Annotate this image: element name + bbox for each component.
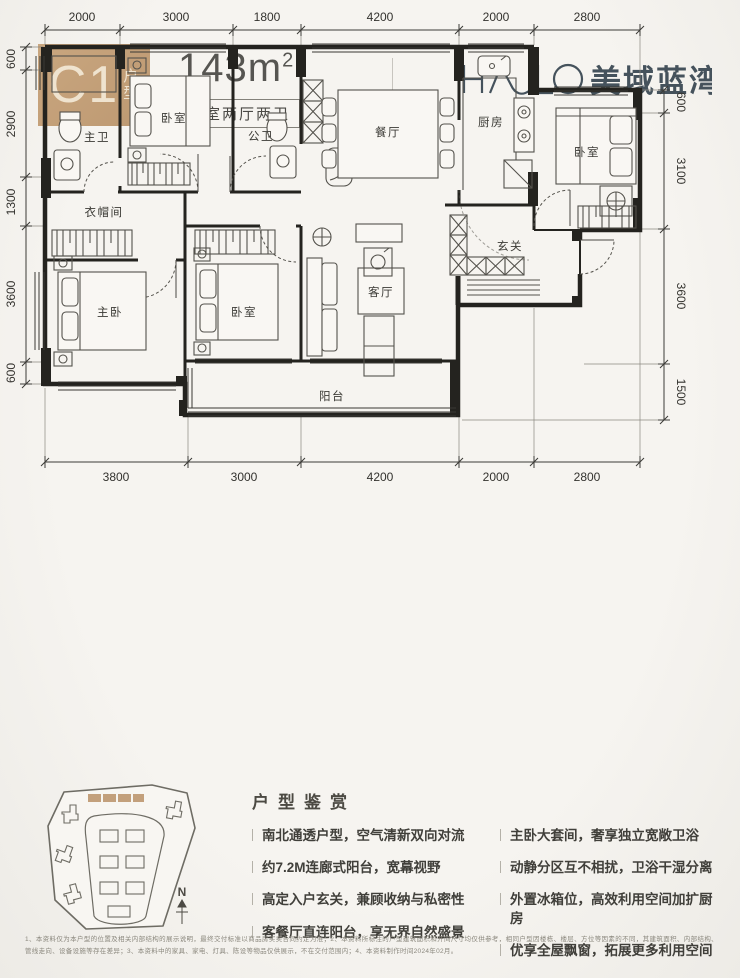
nightstand-icon (54, 352, 72, 366)
wardrobe-icon (195, 230, 275, 254)
site-plan: N (34, 778, 214, 938)
floorplan-flyer: C1 户 型 143m2 四室两厅两卫 美域蓝湾 (0, 0, 740, 978)
bullet-bar-icon (252, 829, 253, 841)
flue-shaft-icon (303, 80, 323, 143)
dim-bottom-5: 2800 (574, 470, 601, 484)
balcony-cabinet-icon (364, 316, 394, 376)
room-label-master-bath: 主卫 (84, 131, 110, 144)
room-label-living: 客厅 (368, 285, 394, 299)
dim-top-5: 2000 (483, 10, 510, 24)
dim-left-2: 2900 (4, 110, 18, 137)
nightstand-icon (54, 256, 72, 270)
toilet-icon (59, 112, 81, 142)
room-label-foyer: 玄关 (497, 239, 523, 253)
room-label-kitchen: 厨房 (478, 116, 504, 129)
pillow-icon (62, 278, 78, 306)
feature-item: 外置冰箱位，高效利用空间加扩厨房 (500, 891, 722, 927)
dim-bottom-4: 2000 (483, 470, 510, 484)
dim-bottom-1: 3800 (103, 470, 130, 484)
room-label-cloakroom: 衣帽间 (85, 205, 124, 219)
feature-item: 南北通透户型，空气清新双向对流 (252, 827, 474, 845)
highlighted-building (88, 794, 144, 802)
nightstand-icon (194, 342, 210, 355)
room-label-balcony: 阳台 (319, 389, 345, 403)
room-label-master-bedroom: 主卧 (97, 306, 123, 319)
compass-icon: N (176, 885, 188, 924)
room-label-guest-bath: 公卫 (248, 130, 274, 143)
dim-bottom-2: 3000 (231, 470, 258, 484)
tv-cabinet-icon (356, 224, 402, 242)
pillow-icon (135, 84, 151, 108)
bullet-bar-icon (500, 861, 501, 873)
room-label-bedroom-c: 卧室 (231, 305, 257, 319)
pillow-icon (200, 304, 216, 332)
dim-top-6: 2800 (574, 10, 601, 24)
dim-left-4: 3600 (4, 280, 18, 307)
bullet-bar-icon (500, 893, 501, 905)
nightstand-icon (128, 58, 146, 73)
foyer-cabinet-icon (450, 215, 540, 295)
dim-right-1: 600 (674, 92, 688, 112)
dim-right-4: 1500 (674, 379, 688, 406)
stove-icon (514, 98, 534, 152)
pillow-icon (135, 112, 151, 136)
svg-text:N: N (178, 885, 187, 899)
dim-left-5: 600 (4, 363, 18, 383)
dim-right-2: 3100 (674, 158, 688, 185)
dim-left-3: 1300 (4, 188, 18, 215)
feature-item: 约7.2M连廊式阳台，宽幕视野 (252, 859, 474, 877)
kitchen-sink-icon (478, 56, 510, 76)
bedroom-a-furniture (128, 58, 210, 162)
pillow-icon (610, 148, 632, 176)
dim-right-3: 3600 (674, 283, 688, 310)
floor-plan: 2000 3000 1800 4200 2000 2800 3800 3000 … (0, 0, 740, 500)
pillow-icon (62, 312, 78, 340)
side-table-icon (313, 228, 331, 246)
pillow-icon (200, 270, 216, 298)
pillow-icon (610, 116, 632, 144)
room-label-bedroom-b: 卧室 (574, 145, 600, 159)
wardrobe-icon (578, 206, 636, 228)
shower-icon (52, 56, 116, 92)
room-label-bedroom-a: 卧室 (161, 111, 187, 125)
disclaimer-text: 1、本资料仅为本户型的位置及相关内部结构的展示说明，最终交付标准以商品房买卖合同… (25, 934, 718, 958)
dim-top-1: 2000 (69, 10, 96, 24)
dim-left-1: 600 (4, 49, 18, 69)
bullet-bar-icon (500, 829, 501, 841)
feature-item: 主卧大套间，奢享独立宽敞卫浴 (500, 827, 722, 845)
bedroom-b-furniture (556, 108, 636, 216)
bedroom-c-furniture (194, 248, 278, 355)
feature-item: 高定入户玄关，兼顾收纳与私密性 (252, 891, 474, 909)
dim-bottom-3: 4200 (367, 470, 394, 484)
sink-icon (270, 146, 296, 178)
kitchen-cabinet-icon (504, 160, 532, 188)
dim-top-2: 3000 (163, 10, 190, 24)
nightstand-icon (128, 148, 146, 162)
dim-top-4: 4200 (367, 10, 394, 24)
wardrobe-icon (52, 230, 132, 256)
features-title: 户型鉴赏 (252, 788, 722, 813)
feature-item: 动静分区互不相扰，卫浴干湿分离 (500, 859, 722, 877)
dim-top-3: 1800 (254, 10, 281, 24)
bullet-bar-icon (252, 893, 253, 905)
room-label-dining: 餐厅 (375, 125, 401, 139)
wardrobe-icon (128, 163, 190, 185)
bullet-bar-icon (252, 861, 253, 873)
living-room-furniture (307, 224, 404, 376)
sink-icon (54, 150, 80, 180)
sofa-icon (307, 258, 337, 356)
